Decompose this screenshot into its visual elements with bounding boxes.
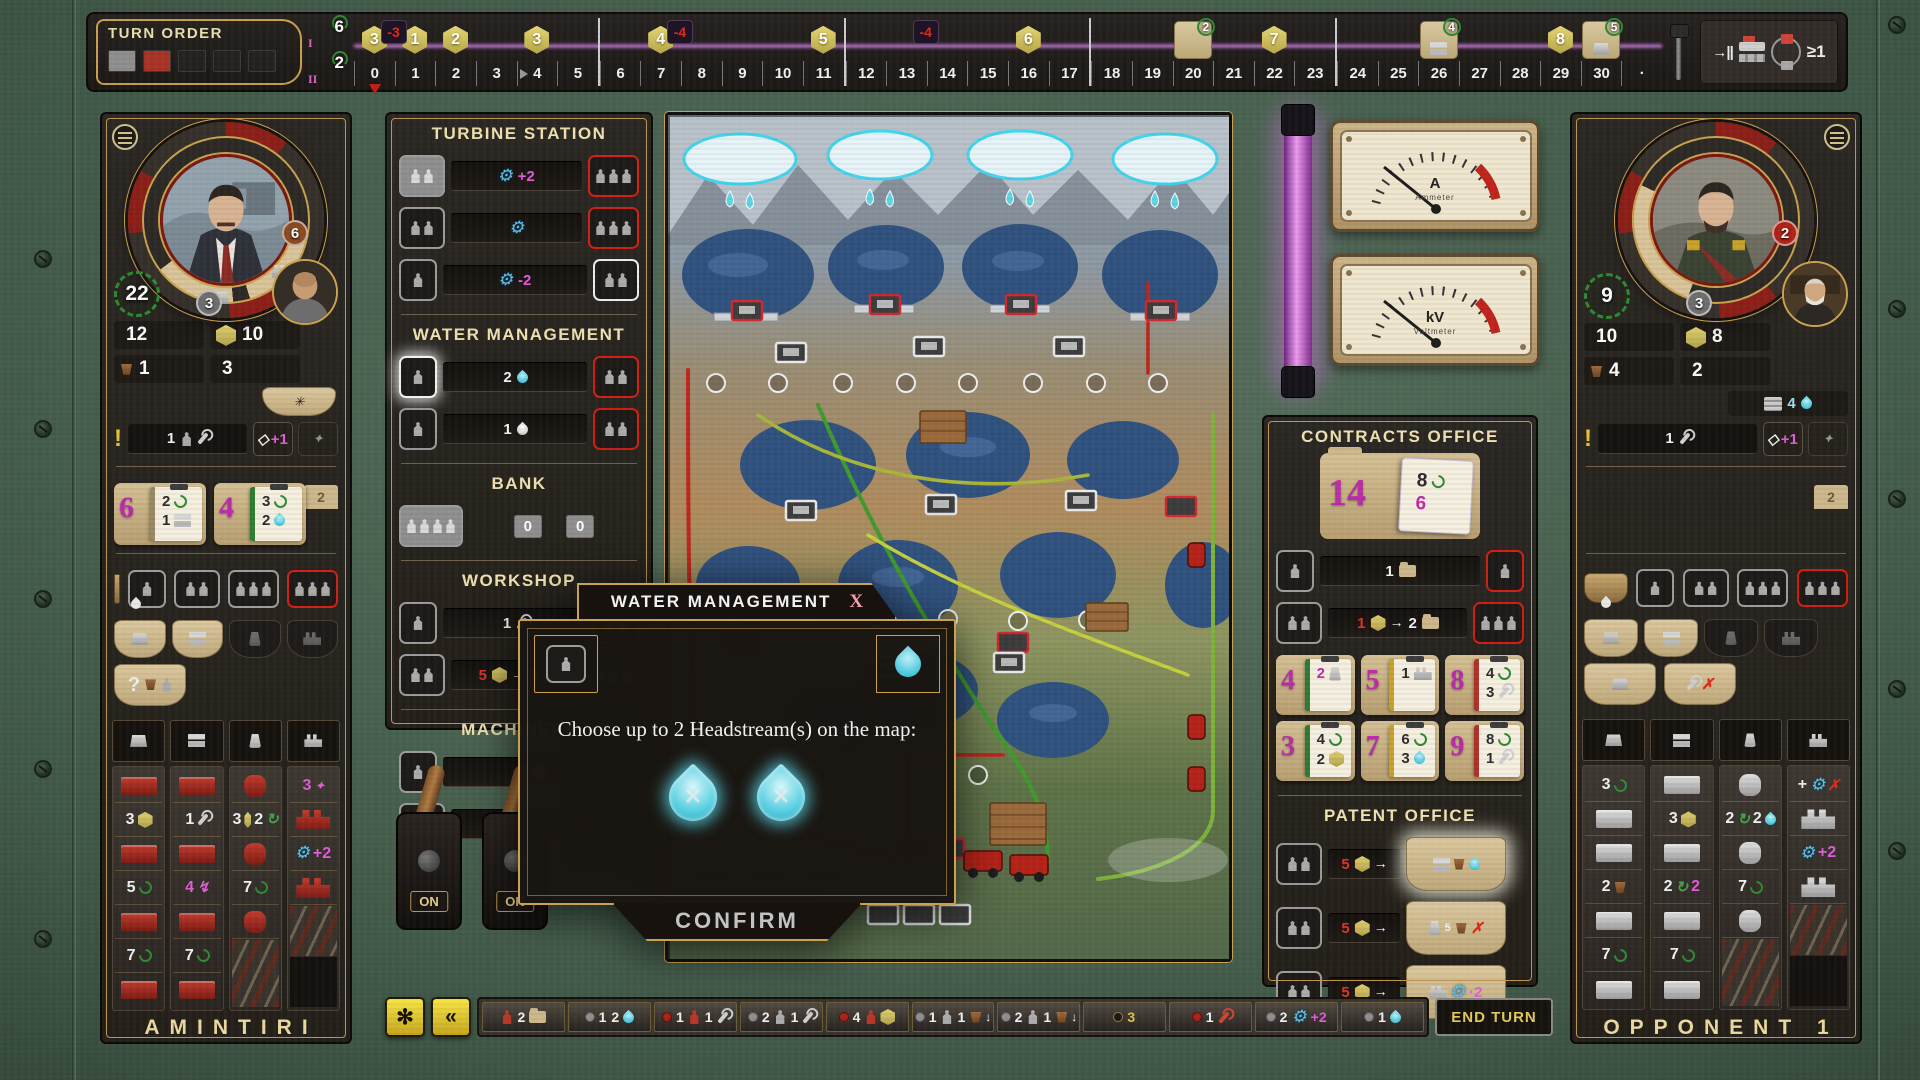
meeple-icon [294, 582, 305, 596]
worker-slot-right[interactable] [593, 259, 639, 301]
tech-cell [232, 940, 279, 1007]
wheel-tile[interactable] [229, 620, 281, 658]
track-number-zone: 15 [967, 61, 1008, 86]
log-entry: 12 [568, 1002, 651, 1032]
worker-group-button[interactable] [1683, 569, 1729, 607]
dot-icon [839, 1012, 849, 1022]
worker-slot-left[interactable] [399, 259, 437, 301]
worker-slot-right[interactable] [593, 408, 639, 450]
resource: 12 [114, 321, 204, 349]
worker-slot-left[interactable] [1276, 907, 1322, 949]
meeple-icon [1287, 857, 1298, 871]
worker-group-button[interactable] [228, 570, 279, 608]
meeple-icon [261, 582, 272, 596]
track-number-zone: 13 [886, 61, 927, 86]
folder-icon [529, 1011, 546, 1023]
gauge-unit: kV [1333, 309, 1537, 326]
track-number: 9 [738, 65, 746, 82]
token: 2 [1408, 616, 1418, 631]
contract-rewards: 42 [1305, 725, 1351, 777]
executive-portrait[interactable] [1782, 261, 1848, 327]
meeple-icon [1027, 1010, 1038, 1024]
track-marker-zone: 2 [435, 18, 476, 61]
worker-group-button[interactable] [287, 570, 338, 608]
mystery-tile[interactable] [1664, 663, 1736, 705]
worker-slot-left[interactable] [399, 408, 437, 450]
reward-line: 8 [1415, 471, 1472, 493]
action-effect: 12 [1328, 608, 1467, 638]
boost-buttons: +1 [253, 422, 338, 456]
tech-cell [1722, 769, 1779, 802]
hand-cards-icon[interactable] [114, 574, 120, 604]
building-piece [1664, 844, 1700, 862]
tech-cell: + [1790, 769, 1847, 802]
gear-icon [1800, 844, 1815, 863]
action-row: 2 [387, 351, 651, 403]
action-row: 1 [387, 403, 651, 455]
building-piece [179, 777, 215, 795]
score-row: 22 [102, 265, 350, 317]
headstream-drop-2[interactable] [747, 763, 815, 831]
contract-value: 6 [119, 491, 134, 525]
track-marker-zone: 6 [1008, 18, 1049, 61]
confirm-button[interactable]: CONFIRM [612, 903, 862, 941]
on-lever-1[interactable]: ON [392, 772, 466, 930]
track-number: · [1640, 65, 1645, 82]
tech-cell [115, 906, 162, 939]
worker-slot-left[interactable] [399, 155, 445, 197]
tech-cell [232, 838, 279, 871]
reward-line: 4 [1485, 666, 1518, 681]
menu-icon[interactable] [1824, 124, 1850, 150]
resource: 1 [114, 355, 204, 383]
deck-tab[interactable]: 2 [304, 485, 338, 509]
building-piece [244, 775, 266, 797]
action-effect: 2 [443, 362, 587, 392]
track-number: 14 [939, 65, 956, 82]
drop-icon [272, 513, 288, 529]
track-marker-zone [557, 18, 598, 61]
worker-hand-row [102, 562, 350, 612]
energy-hex-marker: 3 [524, 26, 549, 54]
meeple-icon [617, 370, 628, 384]
excav-icon [1453, 859, 1466, 870]
track-cell: 6 16 [1008, 18, 1049, 86]
laurel-icon [1496, 730, 1514, 748]
reward-line: 2 [1316, 751, 1349, 767]
gear-icon [1291, 1008, 1306, 1027]
worker-group-button[interactable] [174, 570, 220, 608]
tech-track: ++2 [1787, 765, 1850, 1010]
tech-cell: 32 [232, 804, 279, 837]
end-turn-button[interactable]: END TURN [1435, 998, 1553, 1036]
worker-group-button[interactable] [1737, 569, 1788, 607]
resource: 10 [1584, 323, 1674, 351]
boost-button[interactable] [1808, 422, 1848, 456]
track-marker-zone [476, 18, 517, 61]
token: 1 [675, 1010, 685, 1024]
track-marker-zone [1132, 18, 1173, 61]
track-marker-zone [1049, 18, 1090, 61]
bonus-tile: 4 [1420, 21, 1458, 59]
track-marker-zone [1294, 18, 1335, 61]
meeple-icon [413, 273, 424, 287]
contract-value: 5 [1366, 665, 1380, 697]
wheel-tile[interactable] [287, 620, 339, 658]
elev-icon [188, 734, 205, 747]
action-effect [451, 213, 582, 243]
hand-cards-icon[interactable] [1584, 573, 1628, 603]
track-number: 8 [698, 65, 706, 82]
tech-cell [1790, 905, 1847, 955]
action-effect: +2 [451, 161, 582, 191]
divider [116, 466, 336, 467]
loop-icon [1676, 878, 1689, 897]
track-number-zone: 9 [722, 61, 763, 86]
contract-card[interactable]: 4 2 [1276, 655, 1355, 715]
energy-hex-marker: 8 [1548, 26, 1573, 54]
log-entry: 11 [654, 1002, 737, 1032]
executive-art [274, 261, 336, 323]
tech-cell [173, 838, 220, 871]
meeple-icon [865, 1010, 876, 1024]
building-piece [1801, 809, 1835, 829]
token: 6 [1414, 494, 1428, 514]
worker-slot-right[interactable] [1473, 602, 1524, 644]
action-effect: -2 [443, 265, 587, 295]
wheel-tile[interactable] [1644, 619, 1698, 657]
resource: 10 [210, 321, 300, 349]
credit-icon [1371, 615, 1386, 631]
token: 1 [1485, 751, 1495, 766]
token: 4 [1485, 666, 1495, 681]
patent-office-title: PATENT OFFICE [1264, 806, 1536, 826]
token: 4 [1786, 396, 1796, 411]
income-rules-panel: →|| ≥1 [1700, 20, 1838, 84]
building-icons [1739, 42, 1765, 62]
tech-column: 3227 [1650, 719, 1713, 1010]
excav-icon [120, 364, 133, 375]
meeple-icon [419, 519, 430, 533]
token: 5 [1340, 921, 1350, 936]
wrench-icon [803, 1011, 814, 1024]
penalty-badge: -3 [381, 20, 407, 44]
meeple-icon [1707, 581, 1718, 595]
bonus-value: 5 [1605, 18, 1623, 36]
building-piece [244, 843, 266, 865]
action-effect: 1 [1320, 556, 1480, 586]
tech-cell [1653, 905, 1710, 938]
token: 0 [566, 515, 594, 538]
contract-card[interactable]: 6 21 [114, 483, 206, 545]
executive-portrait[interactable] [272, 259, 338, 325]
water-management-dialog: WATER MANAGEMENT X Choose up to 2 Headst… [518, 583, 956, 941]
wheel-tile[interactable] [114, 620, 166, 658]
boost-button[interactable]: +1 [1763, 422, 1803, 456]
laurel-icon [194, 947, 212, 965]
screw-icon [1888, 842, 1906, 860]
wheel-tile[interactable] [172, 620, 224, 658]
reward-line: 6 [1400, 732, 1433, 747]
powerhouse-icon [1739, 42, 1765, 51]
tech-cell [232, 906, 279, 939]
drop-icon [1763, 812, 1779, 828]
boost-button[interactable]: +1 [253, 422, 293, 456]
tech-cell [290, 804, 337, 837]
token: 5 [126, 880, 137, 896]
worker-slot-left[interactable] [1276, 550, 1314, 592]
tech-cell [290, 906, 337, 956]
meeple-icon [1500, 564, 1511, 578]
track-number: 11 [816, 65, 832, 82]
screw-icon [1888, 16, 1906, 34]
divider [1586, 466, 1846, 467]
track-number: 24 [1349, 65, 1366, 82]
worker-slot-left[interactable] [399, 356, 437, 398]
base-icon [1593, 43, 1610, 55]
token: 1 [1356, 616, 1366, 631]
dot-icon [1113, 1012, 1123, 1022]
token: 2 [1752, 811, 1763, 827]
track-number: 26 [1431, 65, 1448, 82]
wheel-badge: 6 [282, 220, 308, 246]
score-row: 9 [1572, 267, 1860, 319]
tech-cell [173, 770, 220, 803]
reward-line: 4 [1316, 732, 1349, 747]
meeple-icon [604, 422, 615, 436]
token: 8 [1415, 471, 1429, 491]
track-cell: 28 [1500, 18, 1541, 86]
worker-group-button[interactable] [1636, 569, 1674, 607]
track-cell: 24 [1335, 18, 1378, 86]
dot-icon [915, 1012, 925, 1022]
analog-gauge: A Ammeter [1330, 120, 1540, 232]
track-number-zone: 11 [803, 61, 844, 86]
meeple-icon [689, 1010, 700, 1024]
building-piece [121, 913, 157, 931]
laurel-icon [172, 492, 190, 510]
wrench-icon [1218, 1011, 1229, 1024]
menu-icon[interactable] [112, 124, 138, 150]
hex-value: 3 [370, 31, 379, 49]
contract-card[interactable]: 8 43 [1445, 655, 1524, 715]
track-number-zone: 10 [762, 61, 803, 86]
dialog-prompt: Choose up to 2 Headstream(s) on the map: [540, 717, 934, 742]
token: +2 [517, 169, 536, 184]
deck-count: 14 [1328, 471, 1366, 515]
track-number: 10 [775, 65, 792, 82]
tech-cell: 22 [1722, 803, 1779, 836]
track-number: 19 [1144, 65, 1161, 82]
action-log-strip: 212112141121312+21 [477, 997, 1429, 1037]
track-number: 20 [1185, 65, 1202, 82]
meeple-icon [502, 1010, 513, 1024]
analog-gauge: kV Voltmeter [1330, 254, 1540, 366]
technology-columns: 357 147 327 3+2 [102, 712, 350, 1015]
log-entry: 3 [1083, 1002, 1166, 1032]
meeple-icon [235, 582, 246, 596]
worker-slot-left[interactable] [1276, 602, 1322, 644]
bonus-tile: 5 [1582, 21, 1620, 59]
hex-value: 1 [410, 31, 419, 49]
building-piece [1596, 912, 1632, 930]
hex-value: 3 [532, 31, 541, 49]
worker-slot-right[interactable] [593, 356, 639, 398]
building-piece [1739, 842, 1761, 864]
wheel-tile[interactable] [1764, 619, 1818, 657]
worker-slot-right[interactable] [588, 155, 639, 197]
track-marker-zone [1500, 18, 1541, 61]
credit-icon [244, 812, 251, 828]
boost-button[interactable] [298, 422, 338, 456]
track-number: 21 [1226, 65, 1243, 82]
meeple-icon [161, 678, 172, 692]
worker-slot-left[interactable] [399, 602, 437, 644]
hex-value: 6 [1024, 31, 1033, 49]
turn-slot [178, 50, 206, 72]
contract-card[interactable]: 9 81 [1445, 721, 1524, 781]
meeple-icon [185, 582, 196, 596]
reward-line: 1 [1485, 751, 1518, 766]
token: 5 [478, 668, 488, 683]
gear-icon [509, 219, 524, 238]
laurel-icon [1679, 946, 1697, 964]
tech-header [1582, 719, 1645, 761]
contracts-office-title: CONTRACTS OFFICE [1264, 427, 1536, 447]
track-cell: 5 11 [803, 18, 844, 86]
meeple-icon [608, 169, 619, 183]
tech-cell: 3 [290, 770, 337, 803]
headstream-drop-1[interactable] [659, 763, 727, 831]
dot-icon [1364, 1012, 1374, 1022]
mystery-tile[interactable] [1584, 663, 1656, 705]
track-cell: -4 8 [681, 18, 722, 86]
resource: 8 [1680, 323, 1770, 351]
worker-slot-left[interactable] [1276, 843, 1322, 885]
track-cell: 19 [1132, 18, 1173, 86]
contract-card[interactable]: 3 42 [1276, 721, 1355, 781]
settings-button[interactable]: ✻ [385, 997, 425, 1037]
credit-icon [1355, 856, 1370, 872]
resource-value: 8 [1712, 326, 1723, 348]
bank-counters: 00 [469, 511, 639, 541]
bank-title: BANK [387, 474, 651, 494]
tech-cell: 7 [232, 872, 279, 905]
divider [116, 553, 336, 554]
undo-button[interactable]: « [431, 997, 471, 1037]
worker-slot-left[interactable] [399, 505, 463, 547]
token: 3 [1126, 1010, 1136, 1024]
log-entry: 2 [482, 1002, 565, 1032]
base-icon [1605, 734, 1622, 746]
contract-card[interactable]: 4 32 [214, 483, 306, 545]
house-icon [1809, 734, 1827, 747]
patent-tile[interactable]: 5 [1406, 901, 1506, 955]
laurel-icon [1611, 776, 1629, 794]
worker-slot-left[interactable] [399, 654, 445, 696]
reward-line: 2 [161, 494, 200, 509]
contract-card[interactable]: 7 63 [1361, 721, 1440, 781]
track-cell: 25 [1378, 18, 1419, 86]
token: 3 [232, 812, 243, 828]
wheel-zone: 32 [1572, 114, 1860, 267]
building-piece [179, 913, 215, 931]
worker-group-button[interactable] [1797, 569, 1848, 607]
credit-icon [138, 812, 153, 828]
elev-icon [189, 632, 206, 645]
track-number-zone: 30 [1581, 61, 1622, 86]
player-name: OPPONENT 1 [1572, 1014, 1860, 1042]
track-lever[interactable] [1670, 24, 1686, 84]
tech-cell: 22 [1653, 871, 1710, 904]
contract-rewards: 1 [1389, 659, 1435, 711]
worker-slot-right[interactable] [588, 207, 639, 249]
close-icon[interactable]: X [849, 591, 863, 613]
player-name: AMINTIRI [102, 1015, 350, 1042]
table-seam [72, 0, 76, 1080]
executive-ability-tile[interactable] [262, 387, 336, 416]
track-number: 16 [1020, 65, 1037, 82]
token: 3 [125, 812, 136, 828]
elev-icon [1663, 632, 1680, 645]
resources: 10 8 4 2 [1572, 319, 1782, 389]
track-number: 23 [1307, 65, 1324, 82]
contract-rewards: 32 [250, 487, 302, 541]
reward-line: 3 [261, 494, 300, 509]
track-cell: 4 26 [1418, 18, 1459, 86]
tech-column: ++2 [1787, 719, 1850, 1010]
penalty-badge: -4 [667, 20, 693, 44]
meeple-icon [413, 616, 424, 630]
mystery-tile[interactable]: ? [114, 664, 186, 706]
patent-tile[interactable] [1406, 837, 1506, 891]
tech-cell [1653, 837, 1710, 870]
meeple-icon [621, 169, 632, 183]
laurel-icon [136, 879, 154, 897]
turn-slot [143, 50, 171, 72]
meeple-icon [1300, 857, 1311, 871]
bonus-value: 2 [1197, 18, 1215, 36]
contract-deck[interactable]: 14 86 [1320, 453, 1480, 539]
token: 0 [514, 515, 542, 538]
meeple-icon [595, 169, 606, 183]
credit-icon [1681, 811, 1696, 827]
hex-value: 2 [451, 31, 460, 49]
token: +1 [270, 432, 289, 447]
divider [401, 314, 637, 315]
deck-tab[interactable]: 2 [1814, 485, 1848, 509]
arrow-icon [1374, 855, 1388, 873]
track-number: 6 [616, 65, 624, 82]
gear-icon [497, 167, 512, 186]
track-number-zone: 28 [1500, 61, 1541, 86]
elev-icon [1430, 42, 1447, 55]
executive-ability[interactable]: 4 [1728, 391, 1848, 416]
meeple-icon [1300, 616, 1311, 630]
wheel-tile[interactable] [1704, 619, 1758, 657]
wheel-tile[interactable] [1584, 619, 1638, 657]
worker-slot[interactable] [546, 645, 586, 683]
token: 4 [184, 880, 195, 896]
worker-slot-right[interactable] [1486, 550, 1524, 592]
worker-slot-left[interactable] [399, 207, 445, 249]
contract-card[interactable]: 5 1 [1361, 655, 1440, 715]
gear-icon [498, 271, 513, 290]
track-marker-zone: 4 [1418, 18, 1459, 61]
meeple-icon [775, 1010, 786, 1024]
track-number-zone: 25 [1378, 61, 1419, 86]
tech-cell [1790, 871, 1847, 904]
